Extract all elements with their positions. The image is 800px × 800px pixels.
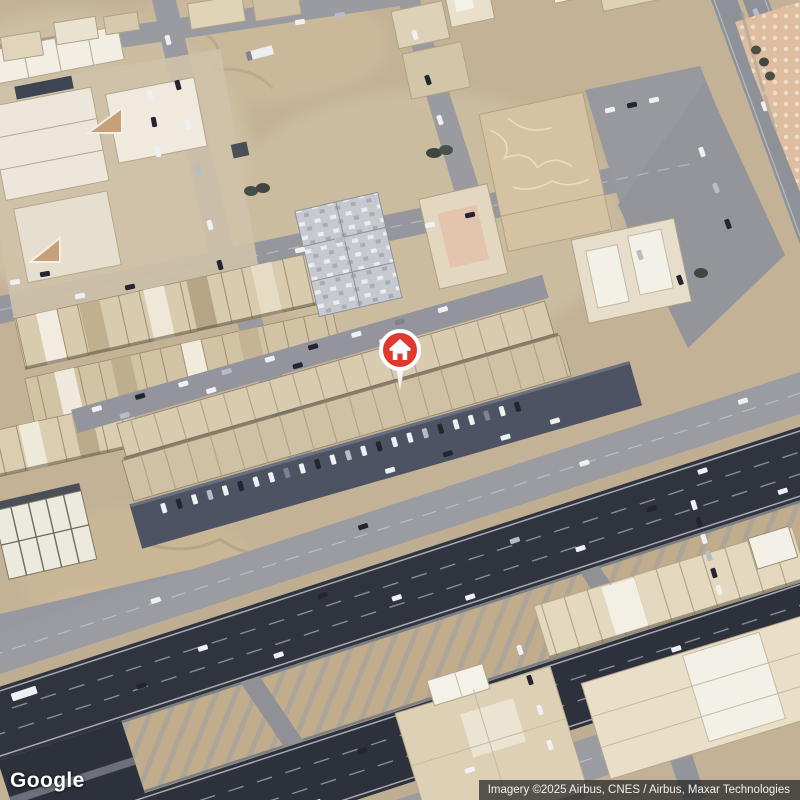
marker-tail [396,368,404,392]
property-marker[interactable] [372,324,428,396]
attribution-text: Imagery ©2025 Airbus, CNES / Airbus, Max… [488,784,790,796]
google-logo[interactable]: Google [10,769,85,793]
satellite-imagery [0,0,800,800]
imagery-attribution: Imagery ©2025 Airbus, CNES / Airbus, Max… [479,780,800,800]
satellite-map[interactable]: Google Imagery ©2025 Airbus, CNES / Airb… [0,0,800,800]
